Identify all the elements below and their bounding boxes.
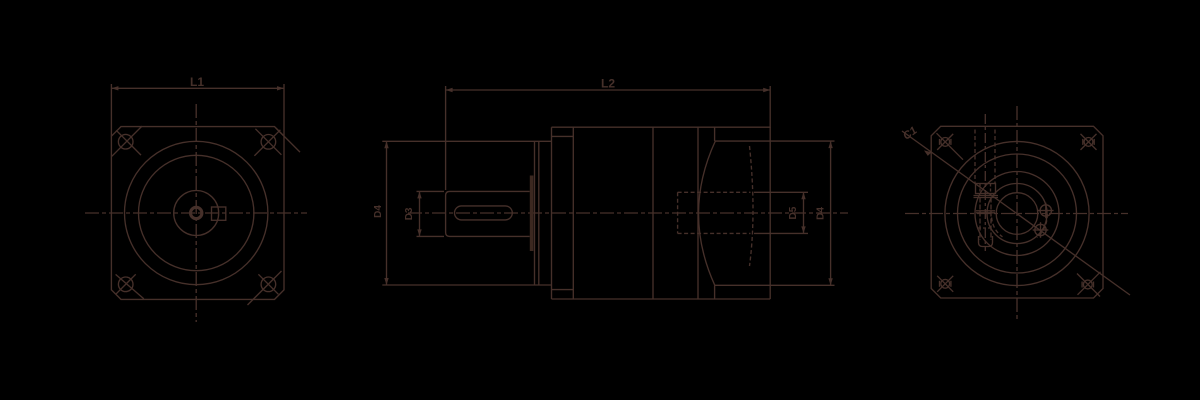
svg-text:D4: D4 — [816, 207, 827, 220]
svg-text:D5: D5 — [788, 206, 799, 219]
svg-text:L1: L1 — [190, 75, 204, 89]
svg-text:D3: D3 — [404, 207, 415, 220]
svg-text:D4: D4 — [373, 205, 384, 218]
svg-text:L2: L2 — [601, 77, 615, 91]
